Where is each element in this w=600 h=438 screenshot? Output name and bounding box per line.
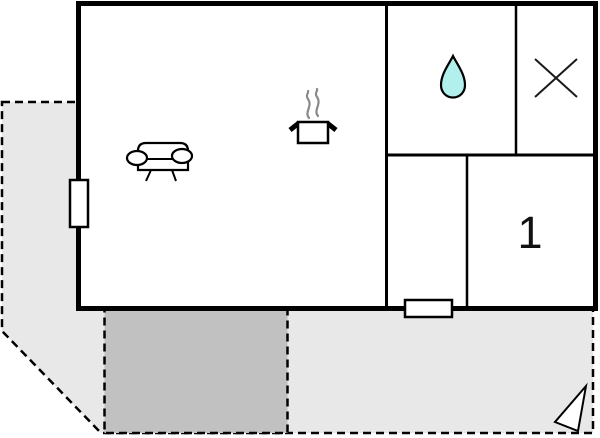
pot-body xyxy=(298,122,328,143)
window-bottom-icon xyxy=(405,300,452,317)
floorplan-svg: 1 xyxy=(0,0,600,438)
sofa-armrest-right xyxy=(172,149,192,163)
sofa-armrest-left xyxy=(127,151,147,165)
window-left-icon xyxy=(70,180,88,227)
patio-dark-area xyxy=(105,309,288,434)
floorplan-canvas: 1 xyxy=(0,0,600,438)
bedroom1-label: 1 xyxy=(517,207,542,258)
